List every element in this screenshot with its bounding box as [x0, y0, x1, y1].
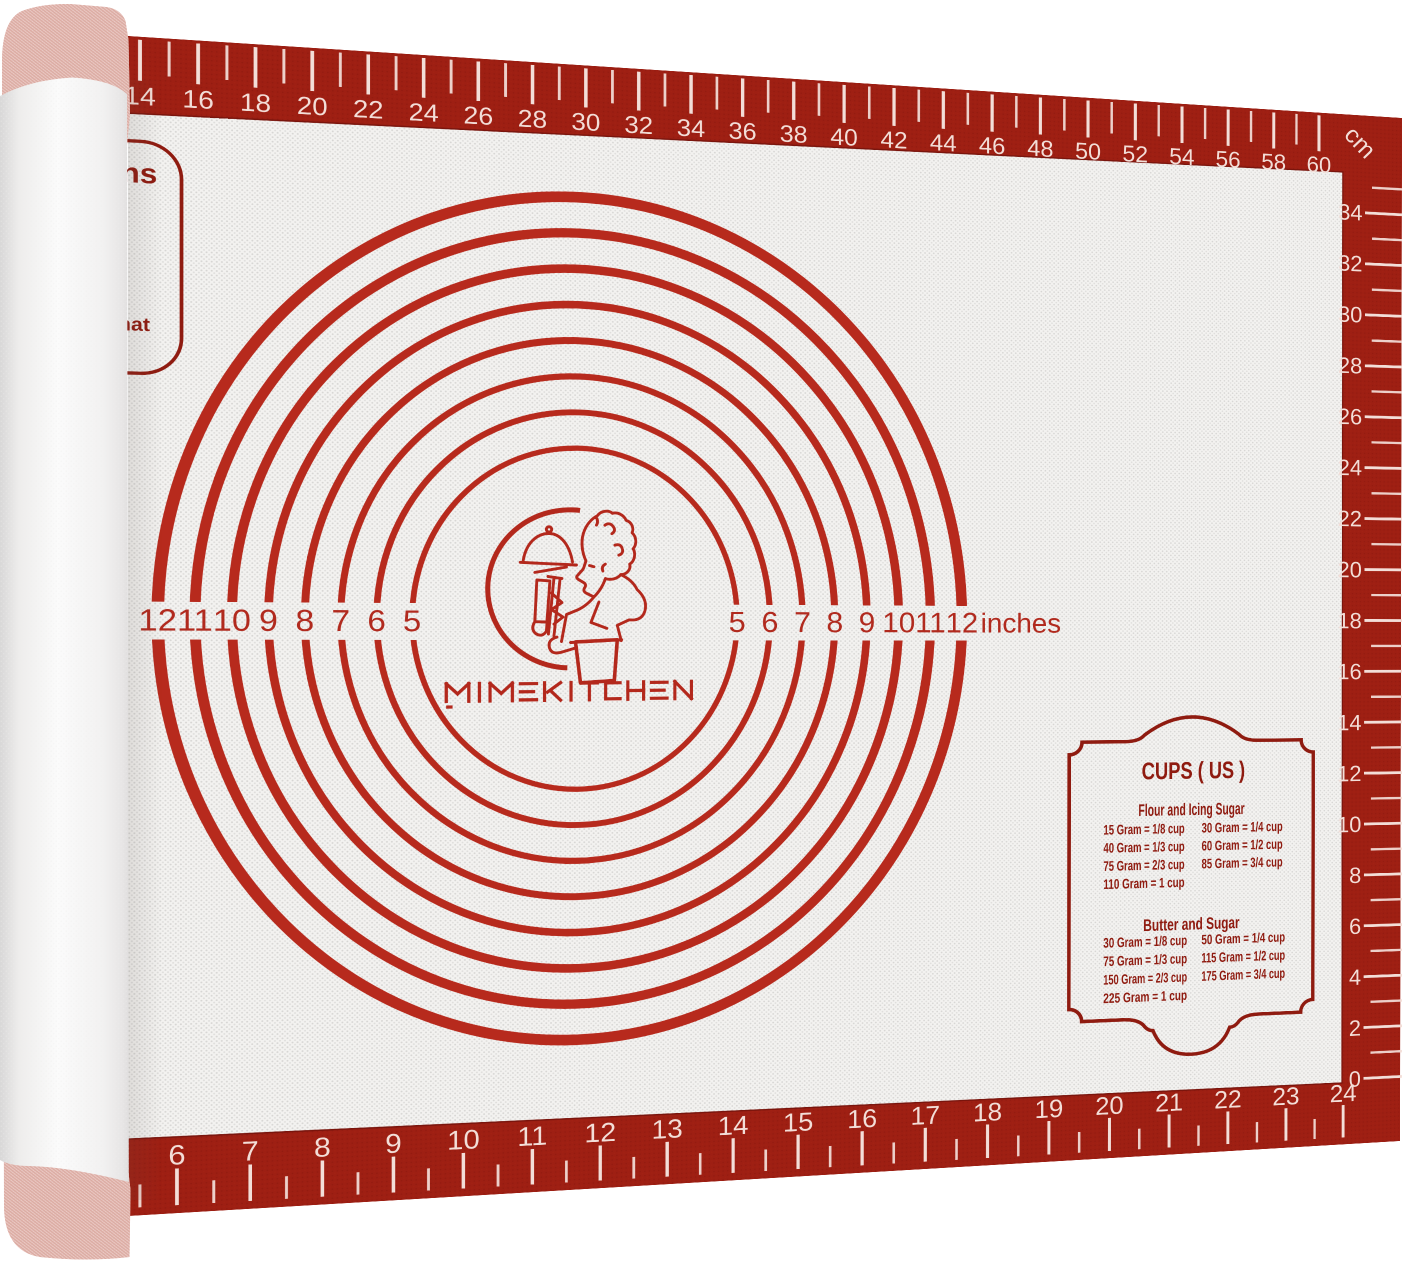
svg-text:30 Gram = 1/8 cup: 30 Gram = 1/8 cup	[1103, 933, 1187, 952]
svg-text:7: 7	[242, 1136, 259, 1167]
svg-text:28: 28	[518, 104, 547, 133]
svg-text:9: 9	[259, 604, 278, 638]
svg-text:24: 24	[409, 98, 439, 128]
svg-text:6: 6	[761, 607, 778, 639]
svg-text:50 Gram = 1/4 cup: 50 Gram = 1/4 cup	[1201, 929, 1285, 947]
svg-text:6: 6	[367, 605, 385, 638]
svg-text:20: 20	[1095, 1092, 1123, 1121]
svg-text:9: 9	[859, 607, 876, 639]
svg-text:34: 34	[677, 114, 705, 143]
svg-text:48: 48	[1027, 135, 1053, 163]
svg-text:26: 26	[463, 101, 493, 130]
svg-text:2: 2	[1349, 1015, 1361, 1041]
svg-text:8: 8	[314, 1133, 331, 1164]
svg-text:24: 24	[1338, 455, 1362, 481]
svg-text:115 Gram = 1/2 cup: 115 Gram = 1/2 cup	[1201, 947, 1285, 966]
svg-text:13: 13	[652, 1115, 683, 1145]
svg-text:32: 32	[624, 111, 653, 140]
svg-text:19: 19	[1035, 1095, 1064, 1124]
svg-text:23: 23	[1272, 1083, 1299, 1111]
svg-text:18: 18	[1337, 608, 1361, 633]
svg-text:Flour and Icing Sugar: Flour and Icing Sugar	[1138, 799, 1244, 820]
svg-text:85 Gram = 3/4 cup: 85 Gram = 3/4 cup	[1202, 854, 1283, 872]
svg-text:54: 54	[1169, 143, 1194, 170]
svg-text:40: 40	[830, 123, 857, 151]
svg-text:11: 11	[517, 1121, 547, 1152]
svg-text:8: 8	[295, 604, 314, 638]
svg-text:20: 20	[297, 91, 328, 121]
svg-text:26: 26	[1338, 404, 1362, 430]
svg-text:10: 10	[213, 604, 251, 638]
svg-text:28: 28	[1338, 352, 1362, 378]
svg-text:15: 15	[783, 1108, 813, 1138]
svg-text:18: 18	[973, 1098, 1002, 1127]
svg-text:75 Gram = 2/3 cup: 75 Gram = 2/3 cup	[1103, 857, 1184, 875]
svg-text:12: 12	[1337, 761, 1361, 786]
svg-text:30: 30	[1338, 301, 1362, 327]
svg-text:8: 8	[826, 607, 843, 639]
svg-text:42: 42	[880, 126, 907, 154]
svg-text:8: 8	[1349, 863, 1361, 888]
svg-text:5: 5	[403, 605, 421, 638]
svg-text:150 Gram = 2/3 cup: 150 Gram = 2/3 cup	[1103, 969, 1187, 988]
svg-text:20: 20	[1337, 557, 1361, 582]
svg-text:40 Gram = 1/3 cup: 40 Gram = 1/3 cup	[1103, 839, 1184, 857]
svg-text:110 Gram = 1 cup: 110 Gram = 1 cup	[1103, 874, 1184, 892]
svg-text:12: 12	[946, 608, 978, 639]
svg-text:24: 24	[1330, 1080, 1357, 1108]
svg-text:75 Gram = 1/3 cup: 75 Gram = 1/3 cup	[1103, 951, 1187, 970]
svg-text:CUPS ( US ): CUPS ( US )	[1142, 757, 1245, 785]
svg-text:7: 7	[794, 607, 811, 639]
svg-text:21: 21	[1155, 1089, 1183, 1118]
svg-text:22: 22	[1338, 506, 1362, 531]
svg-text:4: 4	[1349, 964, 1361, 990]
svg-text:7: 7	[331, 605, 350, 639]
svg-text:17: 17	[911, 1101, 941, 1131]
svg-text:38: 38	[780, 120, 808, 148]
svg-text:30 Gram = 1/4 cup: 30 Gram = 1/4 cup	[1202, 819, 1283, 836]
svg-text:18: 18	[240, 88, 271, 118]
svg-text:14: 14	[718, 1111, 749, 1141]
svg-text:inches: inches	[981, 608, 1062, 639]
svg-text:60: 60	[1307, 151, 1332, 178]
svg-text:6: 6	[1349, 914, 1361, 939]
svg-text:32: 32	[1338, 250, 1362, 276]
svg-text:5: 5	[729, 607, 746, 639]
svg-text:9: 9	[385, 1129, 402, 1160]
svg-text:30: 30	[571, 107, 600, 136]
svg-text:52: 52	[1122, 140, 1148, 167]
svg-text:14: 14	[1337, 710, 1361, 735]
svg-text:36: 36	[729, 117, 757, 146]
svg-text:11: 11	[915, 608, 946, 640]
svg-text:15 Gram = 1/8 cup: 15 Gram = 1/8 cup	[1103, 821, 1184, 838]
svg-text:10: 10	[882, 607, 915, 639]
svg-text:50: 50	[1075, 137, 1101, 164]
svg-text:44: 44	[930, 129, 957, 157]
svg-text:16: 16	[1337, 659, 1361, 684]
svg-text:58: 58	[1261, 149, 1286, 176]
svg-text:60 Gram = 1/2 cup: 60 Gram = 1/2 cup	[1202, 836, 1283, 853]
svg-text:56: 56	[1216, 146, 1241, 173]
svg-text:34: 34	[1338, 199, 1362, 225]
svg-text:12: 12	[584, 1118, 616, 1149]
svg-text:22: 22	[1214, 1086, 1242, 1114]
svg-text:46: 46	[979, 132, 1006, 160]
svg-text:10: 10	[447, 1125, 480, 1156]
svg-text:16: 16	[847, 1105, 877, 1135]
svg-text:10: 10	[1337, 812, 1361, 838]
svg-text:175 Gram = 3/4 cup: 175 Gram = 3/4 cup	[1201, 965, 1285, 984]
svg-text:22: 22	[353, 94, 383, 124]
